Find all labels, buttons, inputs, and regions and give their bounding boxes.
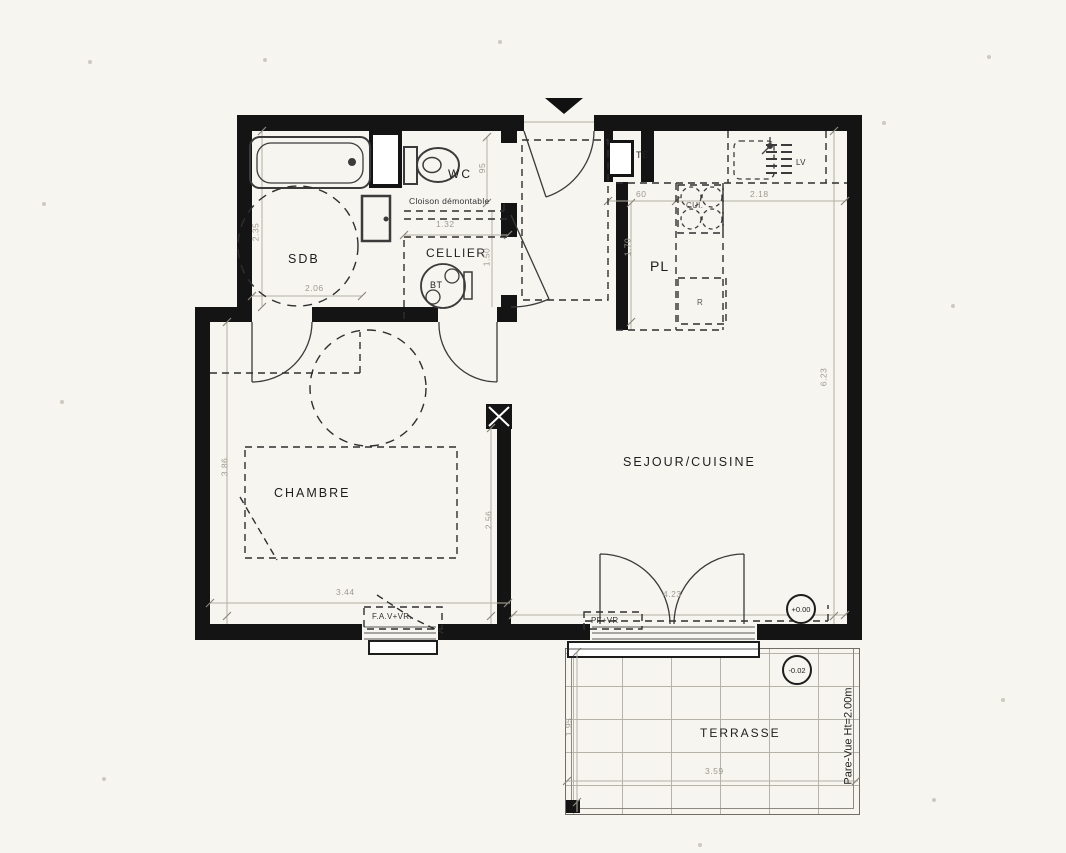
dashed-annotations [210, 131, 847, 633]
label-te: TE [636, 150, 649, 160]
dim-terrasse-w: 3.59 [705, 766, 724, 776]
room-label-cellier: CELLIER [426, 246, 487, 260]
dimension-ticks [206, 127, 860, 806]
glazing-lines [364, 627, 758, 649]
entrance-arrow-icon [545, 98, 583, 114]
dim-wc-w: 95 [477, 163, 487, 173]
label-pl: PL [650, 258, 669, 274]
annotation-pf: PF+VR [591, 616, 619, 625]
dim-sejour-h: 6.23 [818, 368, 828, 387]
level-value: -0.02 [788, 666, 805, 675]
dim-sejour-w: 4.23 [663, 589, 682, 599]
dim-pl-h: 1.70 [622, 238, 632, 257]
turning-circle [310, 330, 426, 446]
plan-linework [0, 0, 1066, 853]
label-bt: BT [430, 280, 443, 290]
dishwasher-icon [766, 145, 792, 173]
column-x-icon [489, 407, 509, 426]
dim-kitchen-w: 2.18 [750, 189, 769, 199]
toilet-icon [404, 147, 417, 184]
scan-noise [42, 40, 1005, 847]
fixtures [250, 137, 792, 308]
room-label-wc: WC [448, 167, 472, 181]
room-label-sdb: SDB [288, 252, 320, 266]
cellier-door [511, 215, 549, 307]
level-marker-terrace: -0.02 [782, 655, 812, 685]
label-cui: CUI. [686, 201, 703, 210]
room-label-terrasse: TERRASSE [700, 726, 781, 740]
dim-chambre-w: 3.44 [336, 587, 355, 597]
annotation-pare-vue: Pare-Vue Ht=2.00m [843, 687, 855, 784]
entrance-door [524, 131, 594, 197]
dimension-lines [210, 122, 858, 812]
dim-te-w: 60 [636, 189, 646, 199]
bedroom-door [439, 322, 497, 382]
dim-cloison-w: 1.32 [436, 219, 455, 229]
floor-plan: SDB WC CELLIER CHAMBRE SEJOUR/CUISINE TE… [0, 0, 1066, 853]
dim-cellier-h: 1.50 [481, 248, 491, 267]
room-label-sejour: SEJOUR/CUISINE [623, 455, 756, 469]
label-refrigerator: R [697, 298, 703, 307]
level-value: +0.00 [792, 605, 811, 614]
dim-terrasse-h: 1.95 [563, 718, 573, 737]
dim-chambre-passage: 2.56 [483, 511, 493, 530]
room-label-chambre: CHAMBRE [274, 486, 351, 500]
dim-sdb-h: 2.35 [250, 223, 260, 242]
dim-sdb-w: 2.06 [305, 283, 324, 293]
annotation-cloison: Cloison démontable [409, 196, 490, 206]
dim-chambre-h: 3.86 [219, 458, 229, 477]
level-marker-interior: +0.00 [786, 594, 816, 624]
annotation-fav: F.A.V+VR. [372, 612, 412, 621]
turning-circle [238, 186, 358, 306]
label-lv: LV [796, 158, 806, 167]
doors [252, 131, 758, 649]
bed-outline [245, 447, 457, 558]
